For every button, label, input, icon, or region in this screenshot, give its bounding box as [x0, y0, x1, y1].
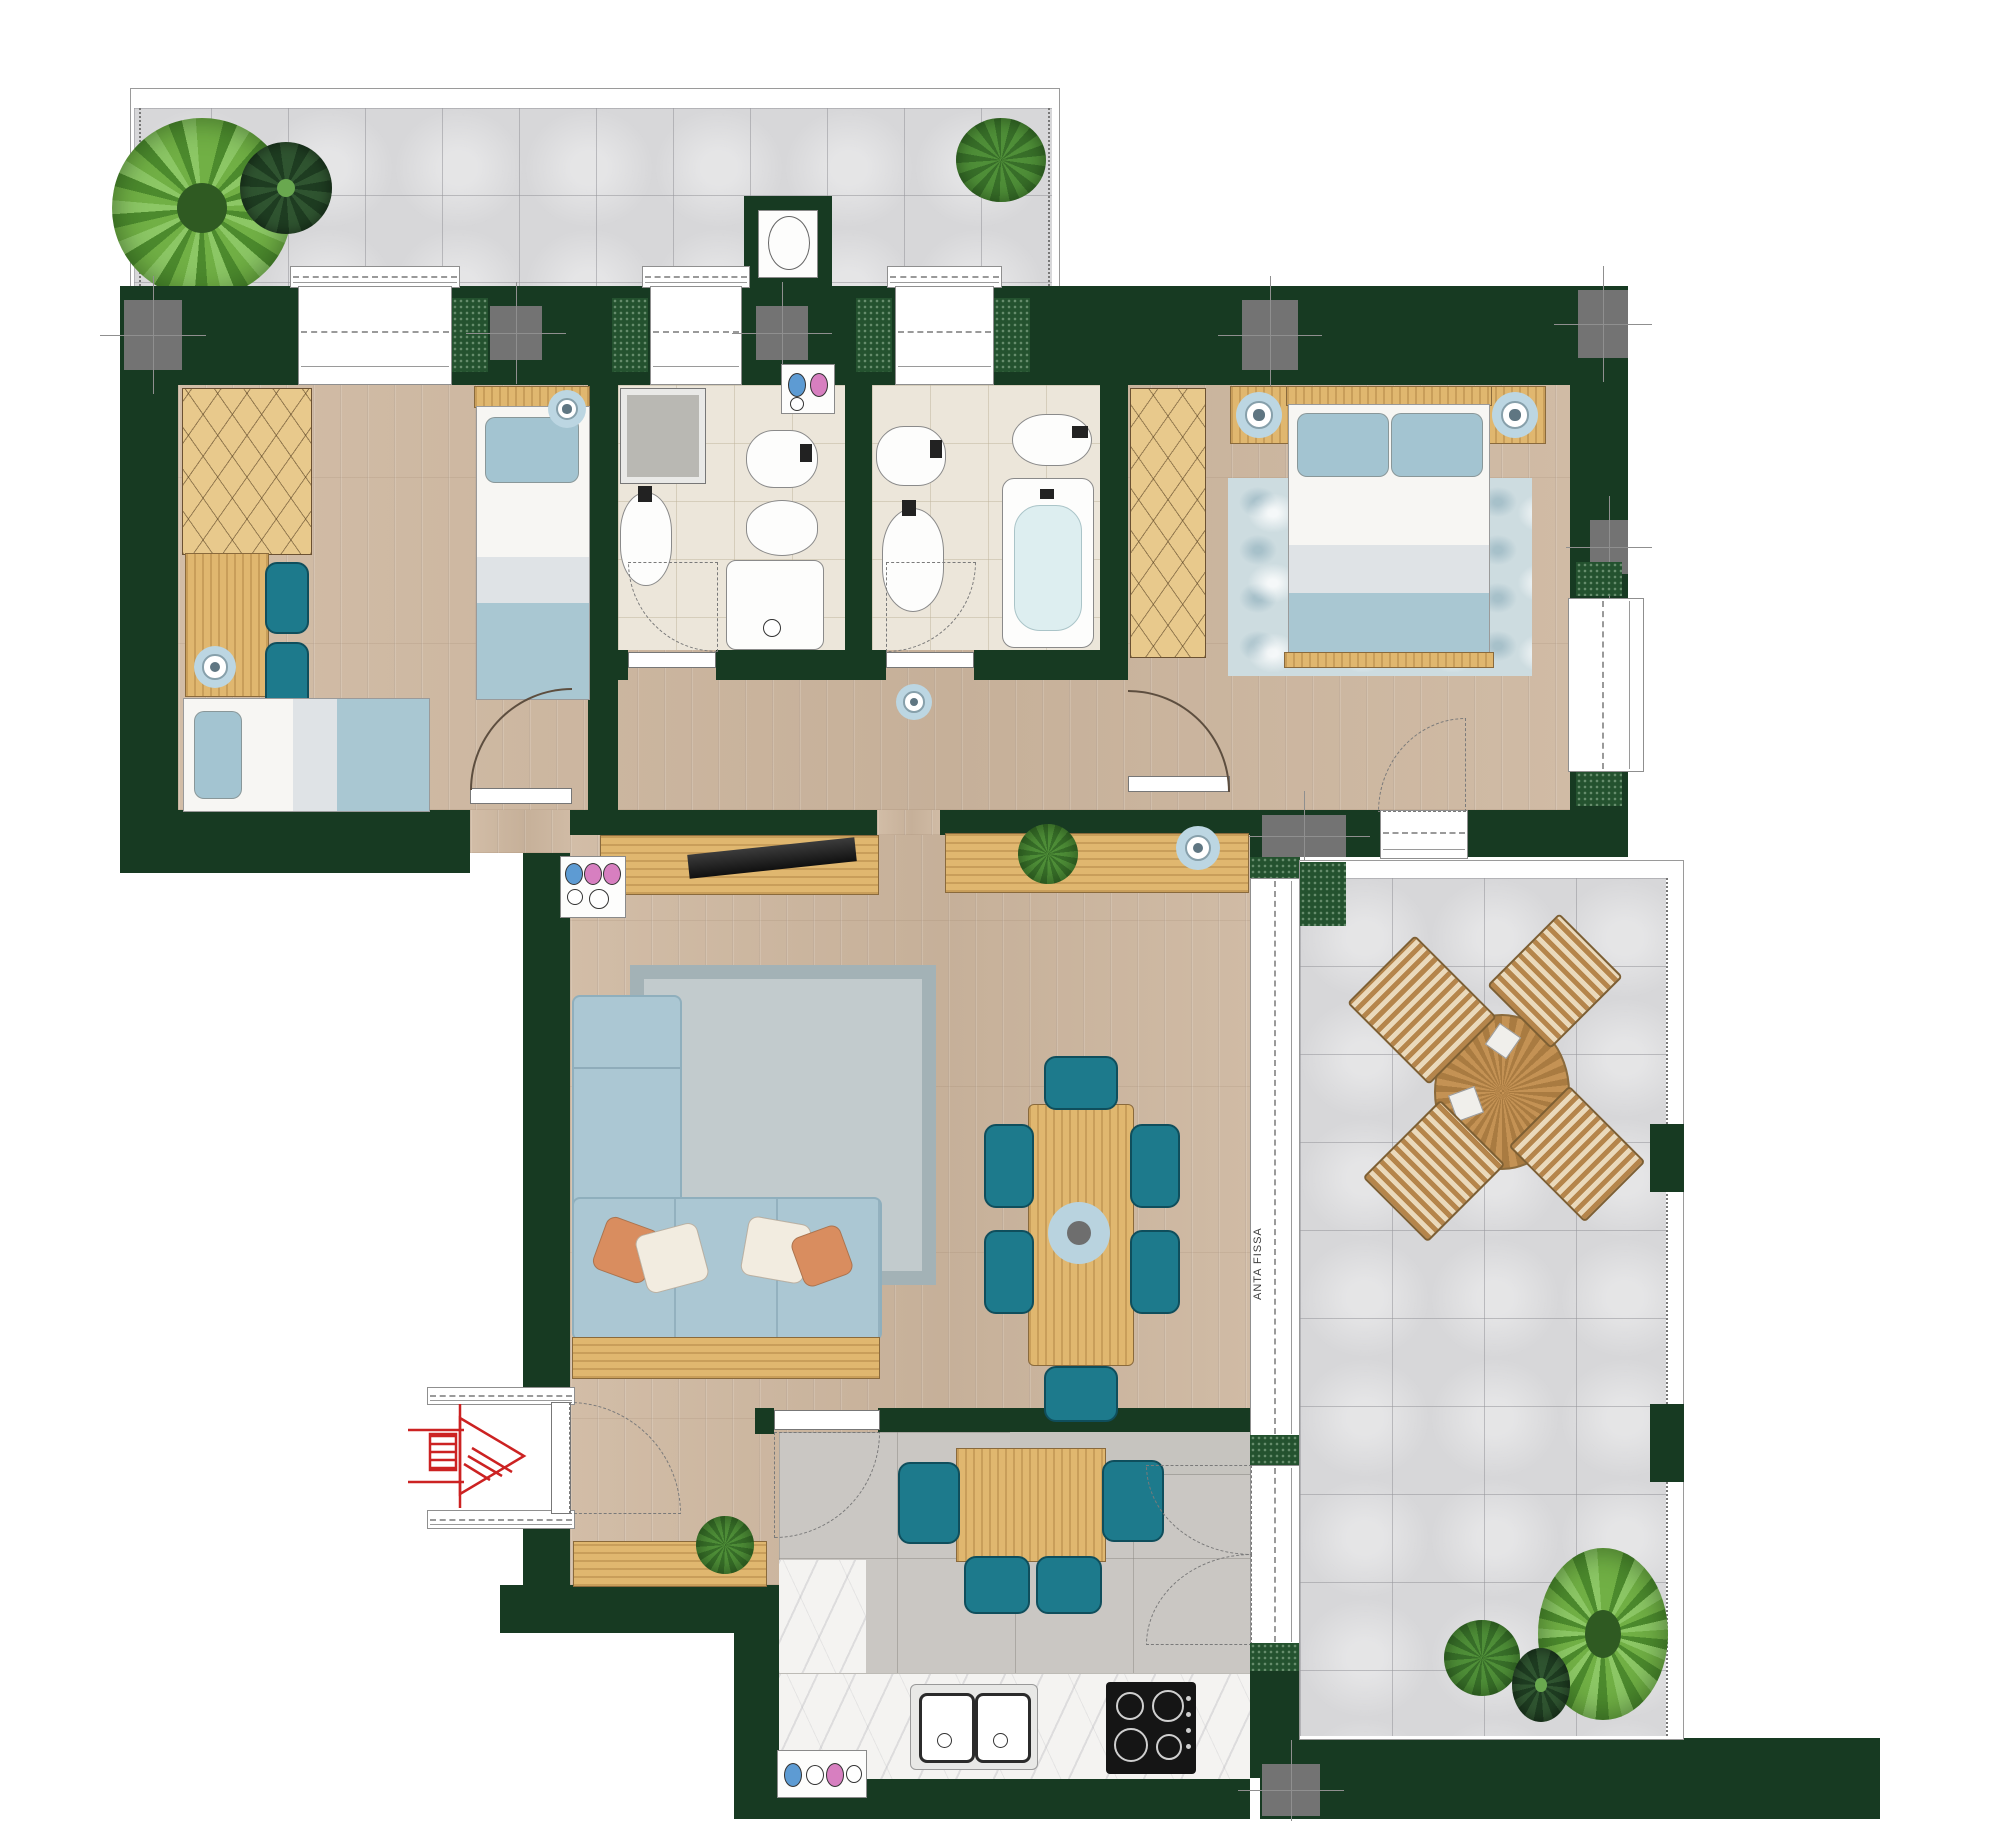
ceiling-lamp-icon	[1492, 392, 1538, 438]
sliding-door-icon	[1380, 810, 1468, 859]
succulent-plant-icon	[240, 142, 332, 234]
plumbing-symbol-icon	[777, 1750, 867, 1798]
ceiling-lamp-icon	[1176, 826, 1220, 870]
succulent-plant-icon	[1512, 1648, 1570, 1722]
dining-chair	[984, 1124, 1034, 1208]
window-hatch-1	[452, 298, 488, 372]
glazing-hatch-bottom	[1250, 1435, 1300, 1465]
window-bath1-sill	[642, 266, 750, 288]
bush-plant-icon	[956, 118, 1046, 202]
window-master-right	[1568, 598, 1644, 772]
bed-headboard	[1286, 386, 1492, 406]
ceiling-lamp-icon	[1236, 392, 1282, 438]
wall-baths-bottom-a	[618, 650, 628, 680]
sofa-bench	[572, 1337, 880, 1379]
faucet-icon	[902, 500, 916, 516]
column-icon	[124, 300, 182, 370]
kitchen-chair	[1036, 1556, 1102, 1614]
entrance-arrow-icon	[398, 1404, 538, 1508]
window-hatch-5	[1576, 562, 1622, 596]
flush-button-icon	[930, 440, 942, 458]
east-terrace-railing	[1666, 878, 1668, 1736]
wall-bath2-right	[1100, 385, 1128, 650]
wall-left	[120, 286, 178, 873]
column-icon	[1242, 300, 1298, 370]
wall-terrace-bottom	[1260, 1738, 1880, 1819]
column-icon	[490, 306, 542, 360]
window-bath1	[650, 286, 742, 385]
bath1-door-leaf	[628, 652, 716, 668]
dining-chair	[984, 1230, 1034, 1314]
wall-baths-bottom-b	[716, 650, 886, 680]
plant-icon	[696, 1516, 754, 1574]
wardrobe-icon	[182, 388, 312, 555]
column-icon	[1262, 815, 1346, 857]
bedroom1-door-leaf	[470, 788, 572, 804]
single-bed-icon	[476, 406, 590, 700]
window-bath2	[895, 286, 994, 385]
faucet-icon	[638, 486, 652, 502]
bed-footboard	[1284, 652, 1494, 668]
cooktop-icon	[1106, 1682, 1196, 1774]
railing-block	[1650, 1124, 1684, 1192]
column-icon	[1262, 1764, 1320, 1816]
wall-master-bottom-b	[1466, 810, 1570, 857]
shower-icon	[620, 388, 706, 484]
ceiling-lamp-icon	[896, 684, 932, 720]
bidet-icon	[746, 500, 818, 556]
kitchen-chair	[964, 1556, 1030, 1614]
flush-button-icon	[800, 444, 812, 462]
double-bed-icon	[1288, 404, 1490, 654]
faucet-icon	[1072, 426, 1088, 438]
window-hatch-6	[1576, 772, 1622, 806]
single-bed-icon	[183, 698, 430, 812]
window-bedroom1	[298, 286, 452, 385]
kitchen-door-leaf	[774, 1410, 880, 1430]
wall-kitchen-left	[734, 1633, 779, 1784]
ceiling-lamp-icon	[194, 646, 236, 688]
plumbing-symbol-icon	[560, 856, 626, 918]
entrance-door-leaf	[551, 1402, 571, 1514]
bathtub-icon	[1002, 478, 1094, 648]
railing-block	[1650, 1404, 1684, 1482]
plant-icon	[1018, 824, 1078, 884]
desk-chair-1	[265, 562, 309, 634]
wall-hall-bottom-left	[570, 810, 877, 835]
glazing-hatch-top	[1250, 857, 1300, 878]
hall-living-opening-floor	[877, 810, 940, 835]
column-icon	[756, 306, 808, 360]
window-bath2-sill	[887, 266, 1002, 288]
sliding-glazing	[1250, 878, 1302, 1437]
dining-chair	[1130, 1230, 1180, 1314]
window-hatch-3	[856, 298, 892, 372]
kitchen-table-icon	[956, 1448, 1106, 1562]
dining-chair	[1130, 1124, 1180, 1208]
plumbing-symbol-icon	[781, 364, 835, 414]
floor-plan: ANTA FISSA	[0, 0, 2000, 1821]
window-bedroom1-sill	[290, 266, 460, 288]
ceiling-lamp-icon	[548, 390, 586, 428]
vent-shaft-icon	[768, 216, 810, 270]
wall-living-bottom	[500, 1585, 779, 1633]
wall-bath1-bath2	[845, 385, 872, 650]
wall-bedroom1-bottom	[120, 810, 470, 873]
column-icon	[1578, 290, 1628, 358]
bath2-door-leaf	[886, 652, 974, 668]
glazing-hatch-kitchen	[1250, 1643, 1300, 1671]
window-hatch-2	[612, 298, 648, 372]
wall-living-left-a	[523, 853, 570, 1387]
dining-chair	[1044, 1366, 1118, 1422]
kitchen-chair	[898, 1462, 960, 1544]
wardrobe-icon	[1130, 388, 1206, 658]
wall-baths-bottom-c	[974, 650, 1128, 680]
kitchen-terrace-door	[1250, 1465, 1302, 1645]
bush-plant-icon	[1444, 1620, 1520, 1696]
terrace-hatch	[1300, 862, 1346, 926]
wall-kitchen-top-a	[755, 1408, 774, 1434]
kitchen-sink-icon	[910, 1684, 1038, 1770]
wall-bedroom1-bath1	[588, 385, 618, 810]
window-hatch-4	[994, 298, 1030, 372]
anta-fissa-label: ANTA FISSA	[1252, 1180, 1264, 1300]
shower-tray-icon	[726, 560, 824, 650]
dining-chair	[1044, 1056, 1118, 1110]
washbasin-icon	[1012, 414, 1092, 466]
kitchen-floor-marble	[779, 1560, 866, 1673]
table-centerpiece-icon	[1048, 1202, 1110, 1264]
doorway-floor-patch	[470, 810, 570, 853]
wall-living-left-b	[523, 1527, 570, 1585]
north-terrace-railing-right	[1048, 108, 1050, 286]
